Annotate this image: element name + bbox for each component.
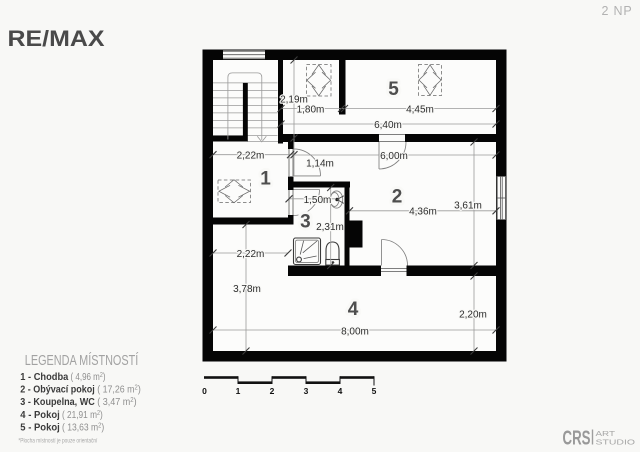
svg-text:1,50m: 1,50m xyxy=(304,195,332,206)
svg-text:2: 2 xyxy=(270,386,275,396)
svg-text:8,00m: 8,00m xyxy=(341,326,369,337)
svg-text:3,61m: 3,61m xyxy=(454,200,482,211)
svg-text:4,45m: 4,45m xyxy=(406,104,434,115)
svg-text:( 17,26 m2): ( 17,26 m2) xyxy=(97,384,141,396)
svg-text:LEGENDA MÍSTNOSTÍ: LEGENDA MÍSTNOSTÍ xyxy=(25,352,139,369)
svg-text:5: 5 xyxy=(372,386,377,396)
svg-text:2: 2 xyxy=(392,187,403,208)
svg-text:3: 3 xyxy=(300,212,311,233)
svg-text:5 - Pokoj: 5 - Pokoj xyxy=(20,422,60,434)
svg-text:1,80m: 1,80m xyxy=(297,104,325,115)
svg-text:3,78m: 3,78m xyxy=(233,284,261,295)
svg-text:3 - Koupelna, WC: 3 - Koupelna, WC xyxy=(20,396,95,408)
svg-text:1: 1 xyxy=(236,386,241,396)
svg-text:2 - Obývací pokoj: 2 - Obývací pokoj xyxy=(20,384,95,396)
svg-text:2,31m: 2,31m xyxy=(316,222,344,233)
svg-text:2,20m: 2,20m xyxy=(459,309,487,320)
svg-text:( 21,91 m2): ( 21,91 m2) xyxy=(62,409,103,421)
svg-text:2 NP: 2 NP xyxy=(602,4,633,18)
svg-text:CRS: CRS xyxy=(563,427,591,449)
svg-text:4 - Pokoj: 4 - Pokoj xyxy=(20,409,60,421)
svg-text:*Plocha místností je pouze ori: *Plocha místností je pouze orientační xyxy=(18,438,97,445)
svg-text:RE/MAX: RE/MAX xyxy=(8,26,105,51)
svg-text:5: 5 xyxy=(388,79,399,100)
svg-text:6,00m: 6,00m xyxy=(380,151,408,162)
svg-text:1: 1 xyxy=(260,169,271,190)
svg-text:2,22m: 2,22m xyxy=(237,150,265,161)
svg-text:STUDIO: STUDIO xyxy=(596,438,636,447)
svg-text:4: 4 xyxy=(338,386,343,396)
svg-text:0: 0 xyxy=(202,386,207,396)
svg-text:2,22m: 2,22m xyxy=(237,249,265,260)
svg-text:6,40m: 6,40m xyxy=(374,120,402,131)
svg-text:3: 3 xyxy=(304,386,309,396)
svg-text:4: 4 xyxy=(348,299,359,320)
svg-text:( 13,63 m2): ( 13,63 m2) xyxy=(62,422,104,434)
svg-text:4,36m: 4,36m xyxy=(409,207,437,218)
svg-text:1,14m: 1,14m xyxy=(306,158,334,169)
svg-text:1 - Chodba: 1 - Chodba xyxy=(20,371,68,383)
